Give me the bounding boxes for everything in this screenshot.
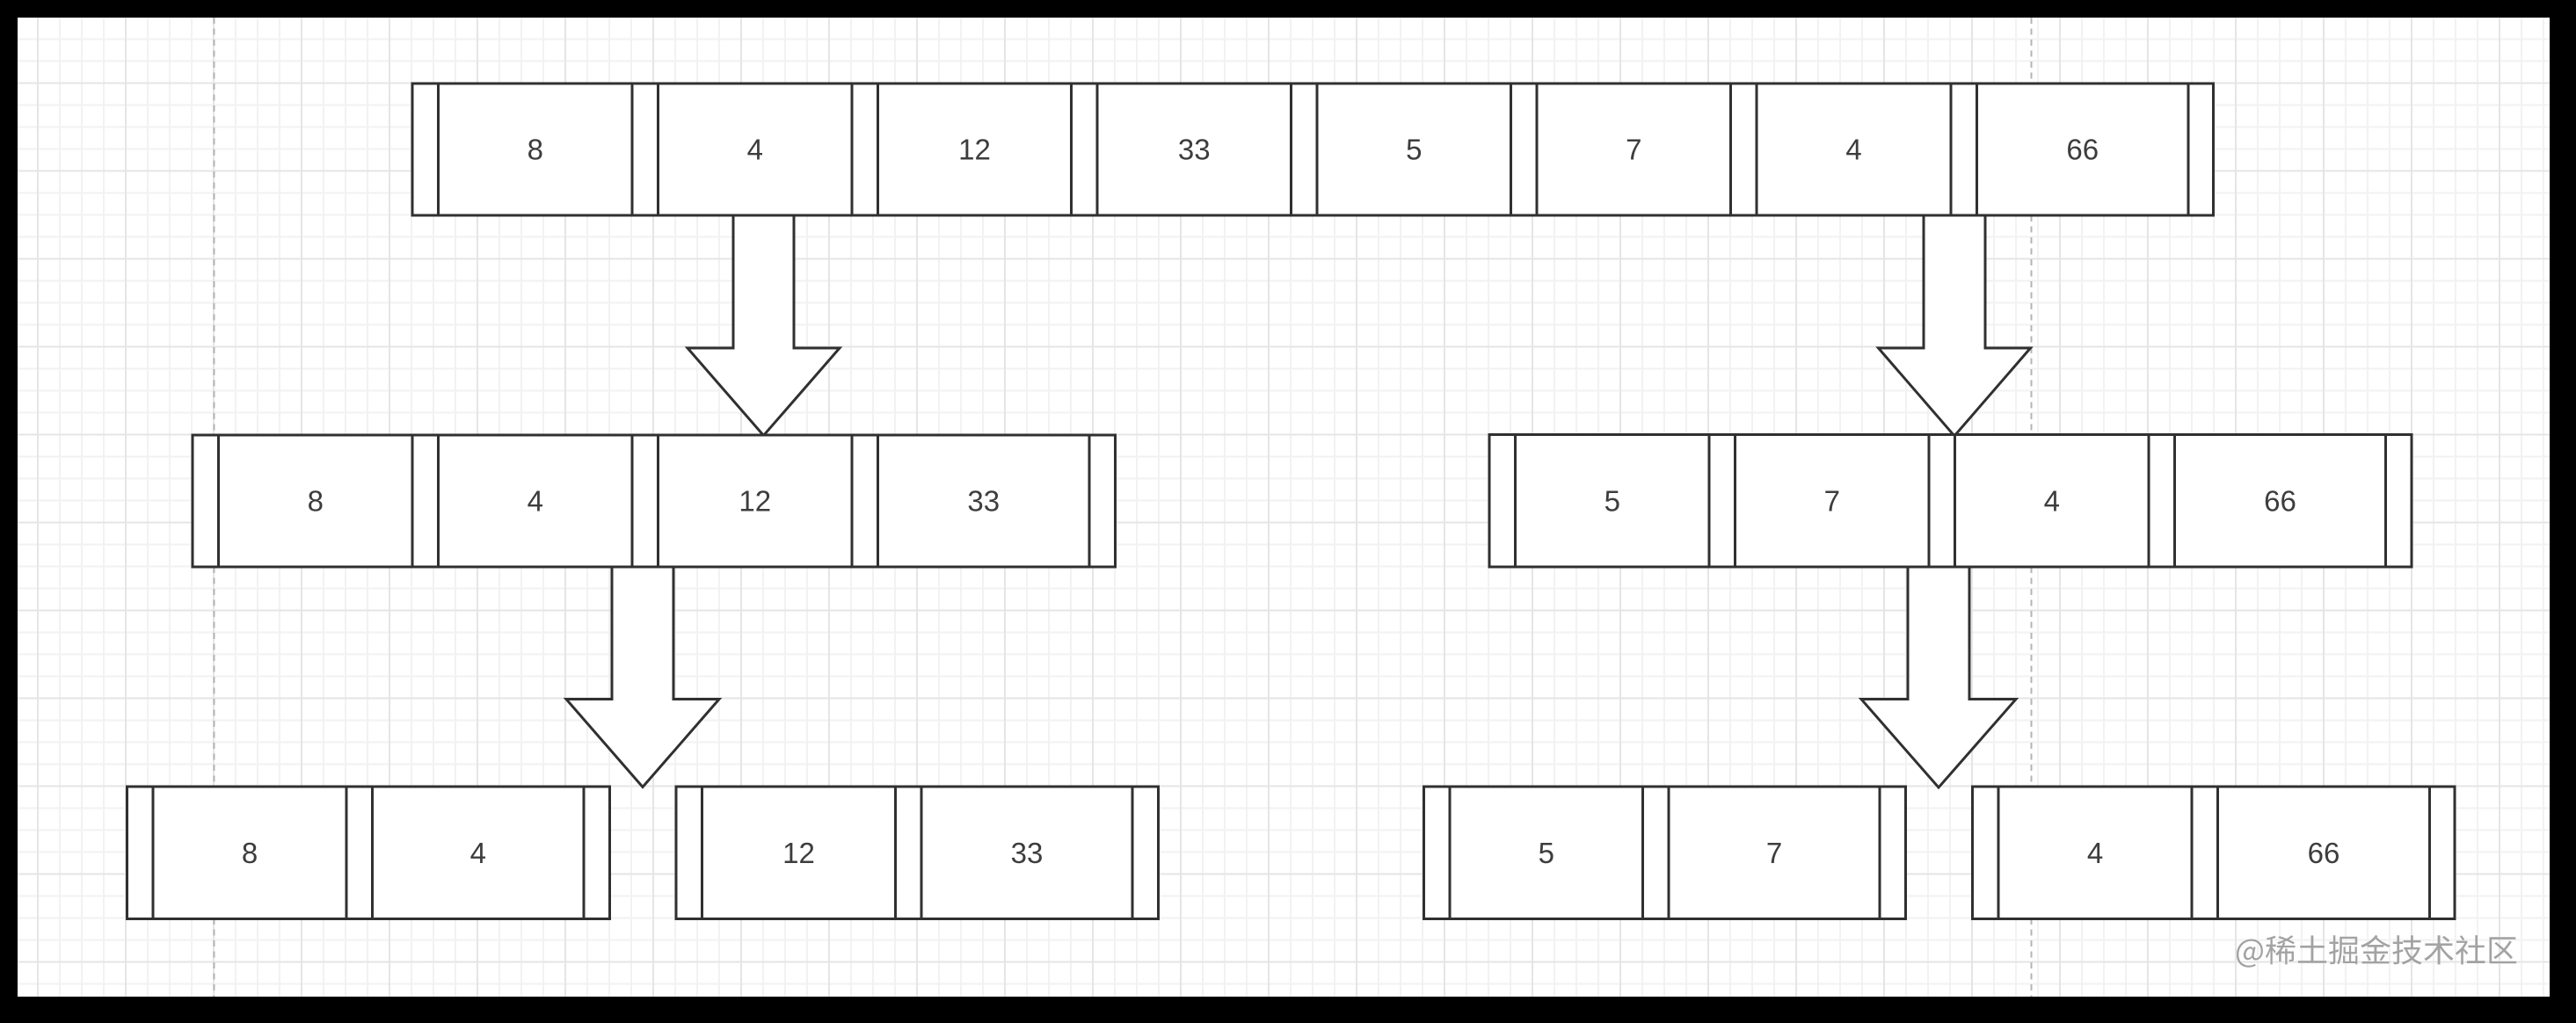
svg-text:33: 33 <box>967 485 1000 518</box>
svg-text:5: 5 <box>1406 134 1422 166</box>
svg-text:7: 7 <box>1626 134 1641 166</box>
svg-text:33: 33 <box>1178 134 1211 166</box>
svg-text:7: 7 <box>1824 484 1840 517</box>
svg-text:7: 7 <box>1766 837 1782 869</box>
svg-text:66: 66 <box>2264 484 2296 517</box>
svg-text:33: 33 <box>1011 837 1044 869</box>
svg-text:12: 12 <box>958 134 991 166</box>
svg-text:4: 4 <box>528 485 543 518</box>
svg-text:8: 8 <box>528 134 543 166</box>
svg-text:12: 12 <box>782 837 815 869</box>
svg-text:8: 8 <box>242 837 258 869</box>
svg-text:4: 4 <box>470 837 486 869</box>
svg-text:5: 5 <box>1605 484 1620 517</box>
svg-text:5: 5 <box>1539 837 1554 869</box>
svg-text:8: 8 <box>308 485 324 518</box>
svg-text:66: 66 <box>2308 837 2340 869</box>
svg-text:12: 12 <box>739 485 771 518</box>
svg-text:66: 66 <box>2066 134 2099 166</box>
svg-text:4: 4 <box>2044 484 2060 517</box>
svg-text:4: 4 <box>747 134 763 166</box>
svg-text:4: 4 <box>1845 134 1861 166</box>
svg-text:4: 4 <box>2087 837 2103 869</box>
